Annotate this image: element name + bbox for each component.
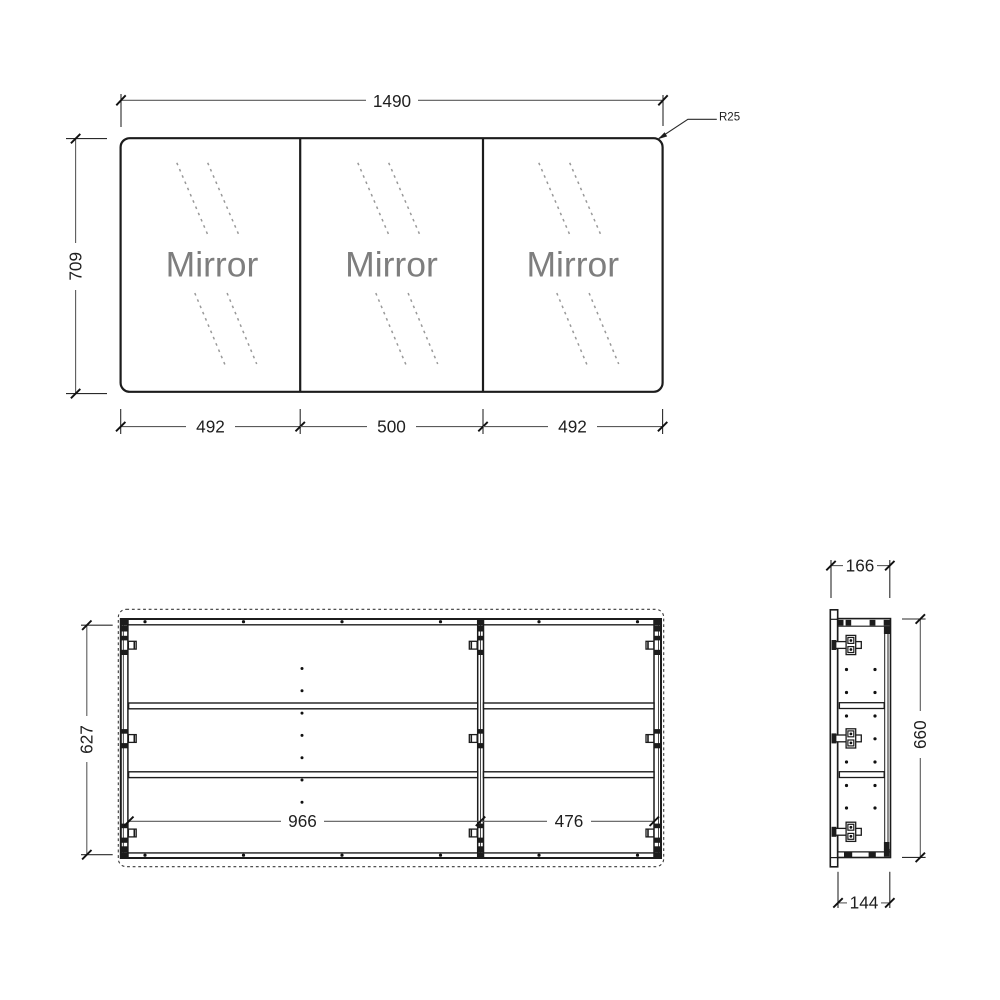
svg-text:Mirror: Mirror (345, 245, 438, 285)
svg-text:627: 627 (77, 725, 97, 754)
svg-text:476: 476 (555, 811, 584, 831)
svg-text:966: 966 (288, 811, 317, 831)
svg-text:500: 500 (377, 416, 406, 436)
svg-text:166: 166 (846, 555, 875, 575)
svg-text:492: 492 (196, 416, 225, 436)
svg-text:Mirror: Mirror (166, 245, 259, 285)
svg-text:Mirror: Mirror (526, 245, 619, 285)
svg-text:660: 660 (910, 720, 930, 749)
svg-text:144: 144 (850, 893, 879, 913)
svg-text:R25: R25 (719, 112, 740, 124)
svg-text:492: 492 (558, 416, 587, 436)
svg-text:709: 709 (66, 252, 86, 281)
svg-text:1490: 1490 (373, 91, 411, 111)
